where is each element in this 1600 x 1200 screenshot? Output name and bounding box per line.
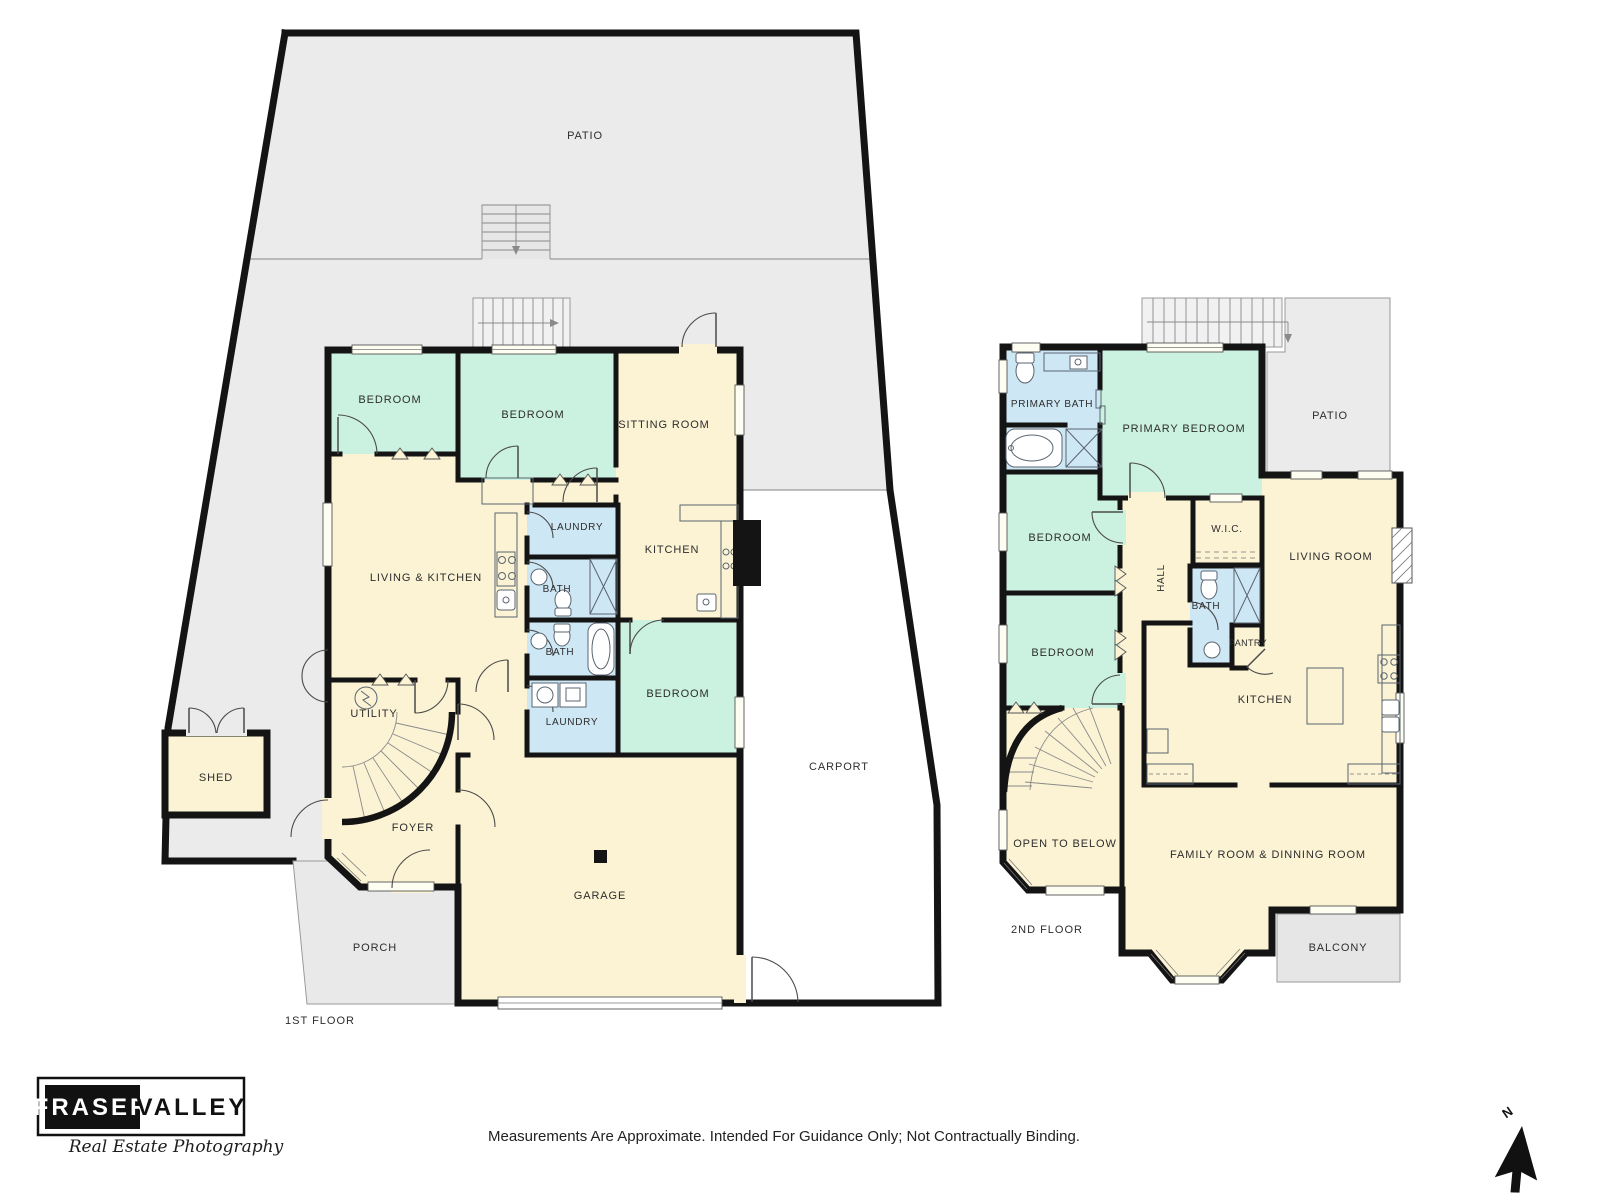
floorplan-canvas: PATIO CARPORT PORCH SHED (0, 0, 1600, 1200)
room-label-bath1: BATH (543, 584, 572, 595)
room-label-patio1: PATIO (567, 130, 603, 142)
room-label-carport: CARPORT (809, 761, 869, 773)
room-label-porch: PORCH (353, 942, 397, 954)
disclaimer-text: Measurements Are Approximate. Intended F… (488, 1128, 1080, 1145)
room-label-patio2: PATIO (1312, 410, 1348, 422)
room-label-shed: SHED (199, 772, 233, 784)
fireplace (1392, 528, 1412, 583)
room-label-kitchen1: KITCHEN (645, 544, 700, 556)
brand-tagline: Real Estate Photography (68, 1137, 284, 1157)
brand-right: VALLEY (137, 1094, 248, 1121)
room-label-family-dining: FAMILY ROOM & DINNING ROOM (1170, 849, 1366, 861)
floor2-stairs-top (1142, 298, 1292, 347)
brand-left: FRASER (34, 1094, 151, 1121)
room-label-balcony: BALCONY (1309, 942, 1368, 954)
room-label-living-kitchen: LIVING & KITCHEN (370, 572, 482, 584)
room-label-bath2: BATH (546, 647, 575, 658)
floor2-patio: PATIO (1267, 298, 1390, 472)
room-label-open-to-below: OPEN TO BELOW (1013, 838, 1117, 850)
north-arrow: N (1492, 1103, 1556, 1200)
room-label-primary-bath: PRIMARY BATH (1011, 399, 1093, 410)
room-label-bedroom1: BEDROOM (358, 394, 421, 406)
room-label-sitting-room: SITTING ROOM (618, 419, 709, 431)
room-label-bath3: BATH (1192, 601, 1221, 612)
room-label-wic: W.I.C. (1211, 524, 1242, 535)
floor2-caption: 2ND FLOOR (1011, 924, 1083, 936)
room-label-bedroom4: BEDROOM (1028, 532, 1091, 544)
room-label-bedroom2: BEDROOM (501, 409, 564, 421)
carport-area (740, 490, 938, 1003)
room-label-hall: HALL (1156, 564, 1167, 592)
room-label-garage: GARAGE (574, 890, 626, 902)
room-label-laundry2: LAUNDRY (546, 717, 599, 728)
room-label-foyer: FOYER (392, 822, 434, 834)
floorplan-page: PATIO CARPORT PORCH SHED (0, 0, 1600, 1200)
room-label-pantry: PANTRY (1229, 638, 1267, 648)
room-label-bedroom5: BEDROOM (1031, 647, 1094, 659)
floor1-plan: PATIO CARPORT PORCH SHED (165, 33, 938, 1027)
balcony-area: BALCONY (1277, 914, 1400, 982)
floor1-caption: 1ST FLOOR (285, 1015, 355, 1027)
room-label-bedroom3: BEDROOM (646, 688, 709, 700)
room-label-laundry1: LAUNDRY (551, 522, 604, 533)
entry-stairs (473, 298, 570, 347)
floor2-plan: PATIO BALCONY (999, 298, 1412, 984)
north-arrow-icon (1492, 1126, 1556, 1200)
room-label-kitchen2: KITCHEN (1238, 694, 1293, 706)
room-label-utility: UTILITY (350, 708, 397, 720)
room-label-living-room: LIVING ROOM (1289, 551, 1372, 563)
patio-stairs (482, 205, 550, 259)
brand-logo: FRASER VALLEY Real Estate Photography (34, 1078, 284, 1157)
room-label-primary-bedroom: PRIMARY BEDROOM (1122, 423, 1245, 435)
chimney (733, 520, 761, 586)
north-label: N (1499, 1103, 1515, 1121)
